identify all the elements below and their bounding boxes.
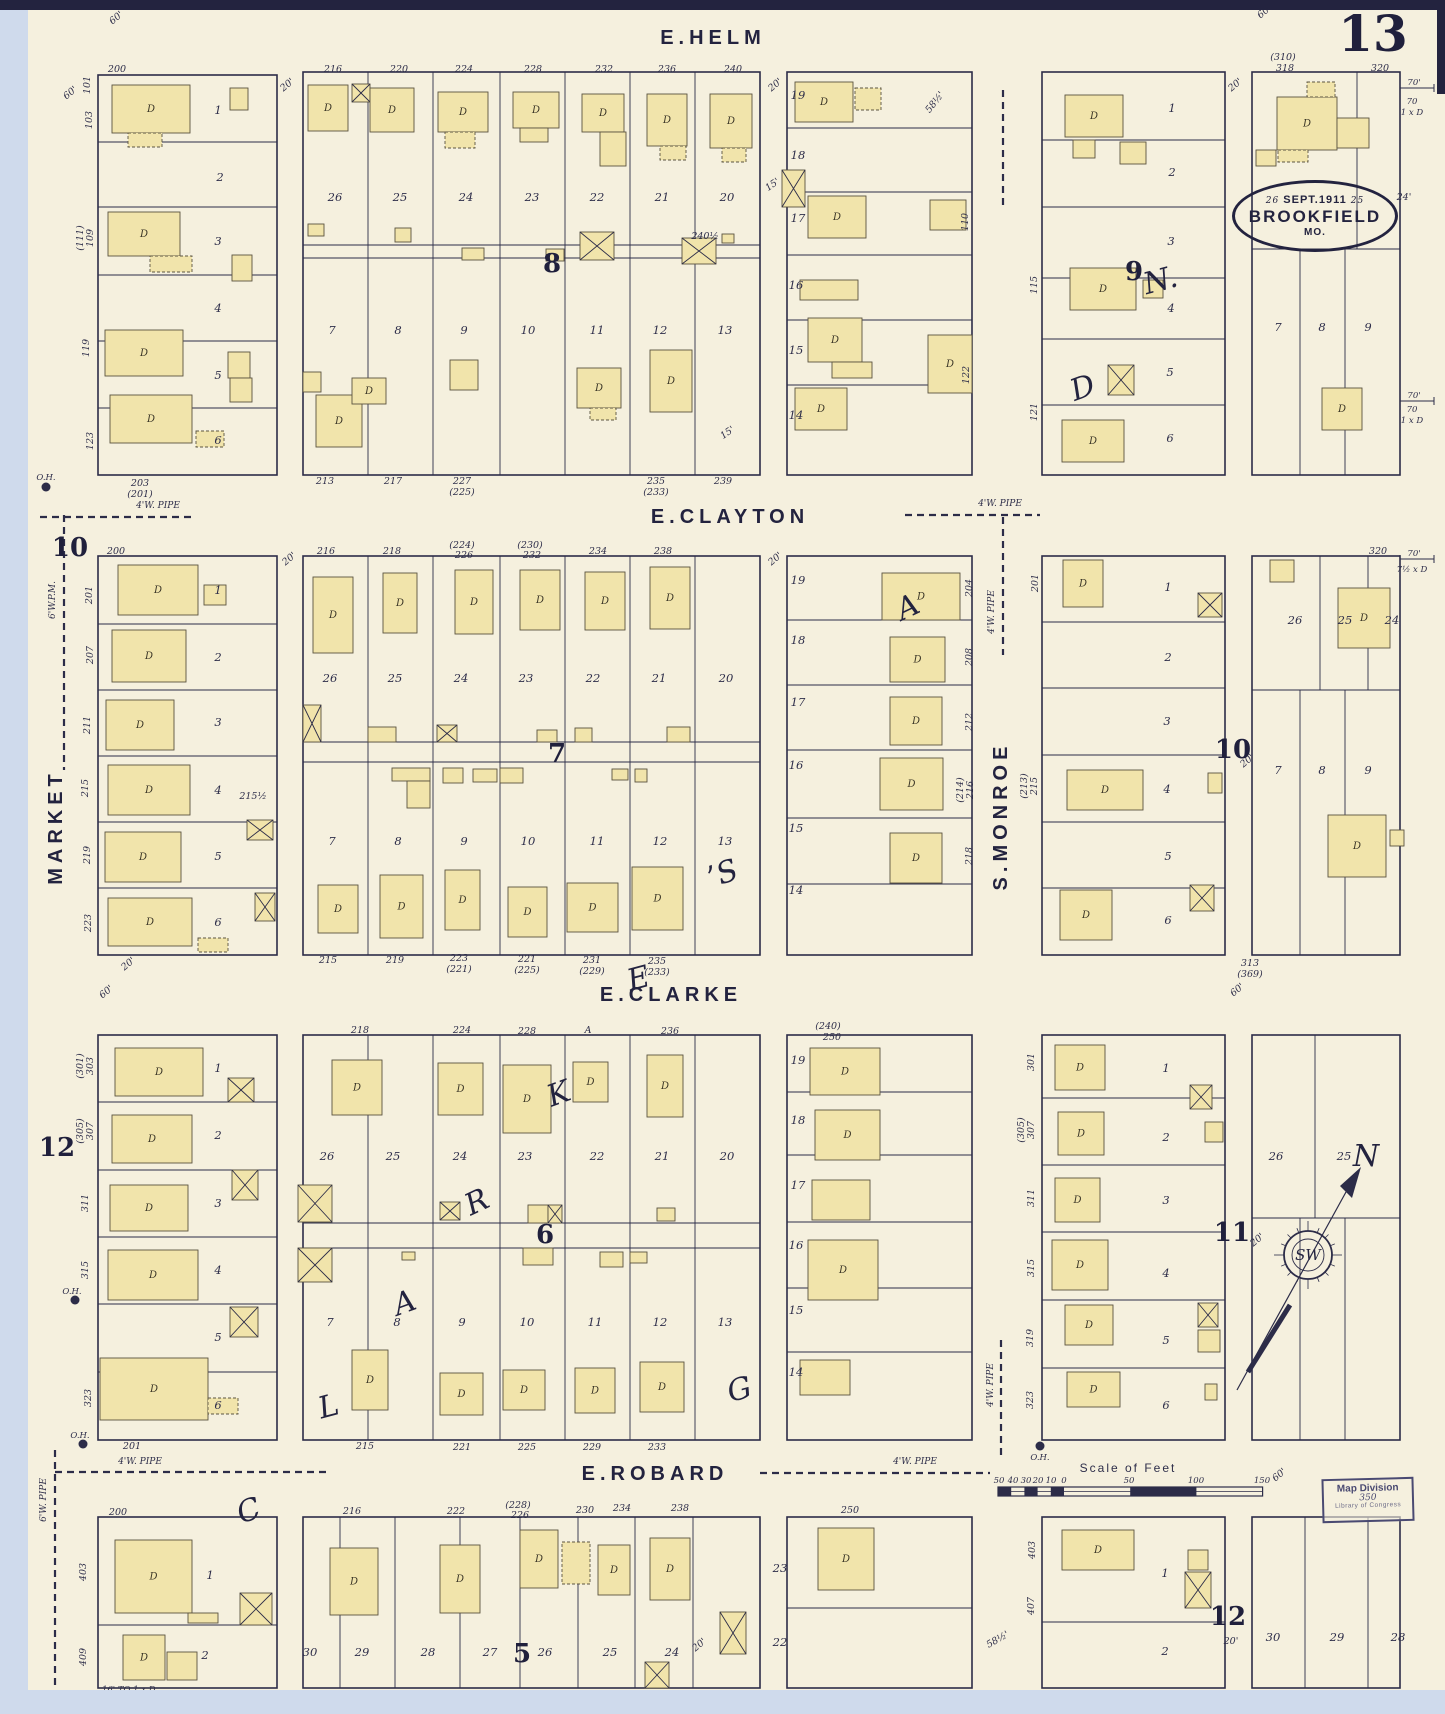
dwelling-label: D (144, 785, 153, 796)
title-stamp-city: BROOKFIELD (1249, 207, 1381, 227)
porch (660, 146, 686, 160)
address-label: 229 (582, 1442, 601, 1453)
lot-number: 3 (1162, 1193, 1169, 1207)
dwelling-label: D (519, 1385, 528, 1396)
lot-number: 25 (392, 190, 408, 204)
lot-number: 9 (1364, 320, 1371, 334)
lot-number: 5 (1166, 365, 1173, 379)
address-label: 219 (82, 846, 93, 865)
dwelling-label: D (323, 103, 332, 114)
building (407, 781, 430, 808)
dwelling-label: D (600, 596, 609, 607)
address-label: 217 (383, 476, 403, 487)
building (812, 1180, 870, 1220)
lot-number: 15 (789, 343, 804, 357)
address-label: 235 (646, 476, 665, 487)
pipe-label: 4'W. PIPE (135, 501, 180, 511)
lot-number: 3 (214, 715, 221, 729)
dwelling-label: D (912, 655, 921, 666)
dwelling-label: D (457, 895, 466, 906)
building (575, 728, 592, 742)
dwelling-label: D (832, 212, 841, 223)
building (1120, 142, 1146, 164)
dwelling-label: D (139, 1653, 148, 1664)
address-label: 226 (454, 550, 473, 561)
address-label: (310) (1270, 52, 1296, 63)
building (800, 1360, 850, 1395)
address-label: 215 (355, 1441, 374, 1452)
address-label: 323 (83, 1389, 94, 1407)
building (520, 128, 548, 142)
lot-number: 4 (213, 301, 221, 315)
title-stamp-date: 26 SEPT.1911 25 (1266, 194, 1364, 206)
building (303, 372, 321, 392)
pipe-label: 6'W. PIPE (39, 1478, 49, 1522)
address-label: 234 (588, 546, 607, 557)
building (1188, 1550, 1208, 1570)
note-label: 70' (1407, 78, 1420, 88)
dwelling-label: D (916, 592, 925, 603)
dwelling-label: D (146, 414, 155, 425)
lot-number: 3 (214, 1196, 221, 1210)
building (1205, 1384, 1217, 1400)
note-label: 70' (1407, 549, 1420, 559)
dwelling-label: D (1078, 579, 1087, 590)
lot-number: 7 (328, 834, 336, 848)
street-name: E.CLAYTON (651, 506, 809, 528)
building (392, 768, 430, 781)
lot-number: 2 (213, 1128, 221, 1142)
address-label: 228 (523, 64, 542, 75)
lot-number: 22 (585, 671, 601, 685)
address-label: 204 (964, 579, 975, 598)
dwelling-label: D (458, 107, 467, 118)
lot-number: 2 (1163, 650, 1171, 664)
lot-number: 27 (482, 1645, 498, 1659)
lot-number: 12 (653, 834, 668, 848)
lot-number: 2 (200, 1648, 208, 1662)
building (500, 768, 523, 783)
lot-number: 2 (213, 650, 221, 664)
porch (208, 1398, 238, 1414)
address-label: 227 (452, 476, 472, 487)
address-label: 213 (315, 476, 334, 487)
lot-number: 23 (524, 190, 540, 204)
dwelling-label: D (1072, 1195, 1081, 1206)
lot-number: 12 (653, 323, 668, 337)
lot-number: 26 (537, 1645, 553, 1659)
dwelling-label: D (395, 598, 404, 609)
lot-number: 24 (664, 1645, 680, 1659)
dwelling-label: D (911, 853, 920, 864)
lot-number: 2 (1161, 1130, 1169, 1144)
dwelling-label: D (1075, 1260, 1084, 1271)
address-label: 201 (84, 586, 95, 605)
building (523, 1248, 553, 1265)
dwelling-label: D (364, 386, 373, 397)
dwelling-label: D (657, 1382, 666, 1393)
building (657, 1208, 675, 1221)
pipe-label: 4'W. PIPE (117, 1457, 162, 1467)
address-label: 216 (316, 546, 335, 557)
lot-number: 1 (214, 1061, 221, 1075)
lot-number: 16 (789, 758, 804, 772)
measurement-label: 20' (1223, 1636, 1239, 1647)
building (667, 727, 690, 742)
lot-number: 30 (303, 1645, 318, 1659)
lot-number: 1 (1164, 580, 1171, 594)
block-number: 8 (543, 249, 561, 279)
dwelling-label: D (146, 104, 155, 115)
note-label: 1 x D (1401, 416, 1424, 426)
address-label: 218 (964, 847, 975, 866)
dwelling-label: D (154, 1067, 163, 1078)
address-label: 211 (82, 716, 93, 735)
pipe-label: 4'W. PIPE (892, 1457, 937, 1467)
address-label: (229) (579, 966, 605, 977)
dwelling-label: D (1098, 284, 1107, 295)
dwelling-label: D (906, 779, 915, 790)
lot-number: 21 (654, 190, 670, 204)
dwelling-label: D (830, 335, 839, 346)
lot-number: 11 (588, 1315, 603, 1329)
address-label: 122 (961, 366, 972, 384)
address-label: (233) (643, 487, 669, 498)
lot-number: 30 (1266, 1630, 1281, 1644)
dwelling-label: D (1337, 404, 1346, 415)
lot-number: 1 (214, 103, 221, 117)
address-label: 216 (323, 64, 342, 75)
address-label: 208 (964, 648, 975, 667)
address-label: 224 (452, 1025, 471, 1036)
dwelling-label: D (334, 416, 343, 427)
library-stamp-line3: Library of Congress (1324, 1501, 1412, 1510)
address-label: 218 (350, 1025, 369, 1036)
lot-number: 24 (1384, 613, 1400, 627)
building (443, 768, 463, 783)
address-label: 315 (80, 1261, 91, 1279)
dwelling-label: D (365, 1375, 374, 1386)
title-stamp-state: MO. (1304, 227, 1326, 238)
dwelling-label: D (662, 115, 671, 126)
note-label: 70 (1407, 97, 1418, 107)
block-number: 5 (513, 1639, 531, 1669)
address-label: 219 (385, 955, 404, 966)
building (1198, 1330, 1220, 1352)
street-name: S.MONROE (990, 742, 1012, 891)
address-label: 215½ (238, 791, 266, 802)
lot-number: 25 (385, 1149, 401, 1163)
lot-number: 5 (1164, 849, 1171, 863)
dwelling-label: D (1359, 613, 1368, 624)
dwelling-label: D (531, 105, 540, 116)
address-label: 403 (78, 1563, 89, 1582)
dwelling-label: D (1084, 1320, 1093, 1331)
building (1390, 830, 1404, 846)
address-label: 240½ (690, 231, 718, 242)
dwelling-label: D (594, 383, 603, 394)
street-name: MARKET (45, 769, 67, 885)
lot-number: 26 (1287, 613, 1303, 627)
address-label: 311 (80, 1194, 91, 1212)
dwelling-label: D (1076, 1129, 1085, 1140)
dwelling-label: D (455, 1084, 464, 1095)
lot-number: 4 (1161, 1266, 1169, 1280)
note-label: O.H. (62, 1287, 81, 1297)
title-stamp-oval: 26 SEPT.1911 25 BROOKFIELD MO. (1232, 180, 1398, 252)
page-edge-top (0, 0, 1445, 10)
address-label: 212 (964, 713, 975, 732)
dwelling-label: D (1100, 785, 1109, 796)
address-label: 307 (1026, 1120, 1037, 1139)
building (167, 1652, 197, 1680)
porch (150, 256, 192, 272)
lot-number: 7 (1274, 763, 1282, 777)
address-label: 307 (85, 1121, 96, 1140)
lot-number: 18 (791, 1113, 806, 1127)
measurement-label: 24' (1396, 192, 1412, 203)
block-number: 10 (52, 533, 88, 563)
address-label: 315 (1026, 1259, 1037, 1277)
pipe-label: 4'W. PIPE (987, 590, 997, 635)
lot-number: 1 (1168, 101, 1175, 115)
dwelling-label: D (841, 1554, 850, 1565)
address-label: 200 (106, 546, 125, 557)
dwelling-label: D (842, 1130, 851, 1141)
lot-number: 25 (1337, 613, 1353, 627)
address-label: 233 (647, 1442, 666, 1453)
address-label: 215 (318, 955, 337, 966)
porch (128, 133, 162, 147)
address-label: 224 (454, 64, 473, 75)
address-label: (240) (815, 1021, 841, 1032)
lot-number: 17 (791, 211, 806, 225)
lot-number: 26 (1268, 1149, 1284, 1163)
dwelling-label: D (469, 597, 478, 608)
block-number: 6 (536, 1220, 554, 1250)
note-label: 20 (1032, 1476, 1044, 1486)
building (1205, 1122, 1223, 1142)
lot-number: 4 (213, 783, 221, 797)
lot-number: 19 (791, 88, 806, 102)
lot-number: 6 (214, 1398, 221, 1412)
lot-number: 13 (718, 834, 733, 848)
address-label: 319 (1025, 1329, 1036, 1347)
building (1270, 560, 1294, 582)
lot-number: 3 (1167, 234, 1174, 248)
address-label: 201 (122, 1441, 141, 1452)
dwelling-label: D (652, 894, 661, 905)
lot-number: 18 (791, 633, 806, 647)
dwelling-label: D (333, 904, 342, 915)
dwelling-label: D (535, 595, 544, 606)
address-label: 407 (1026, 1596, 1037, 1616)
dwelling-label: D (1081, 910, 1090, 921)
lot-number: 11 (590, 834, 605, 848)
lot-number: 29 (354, 1645, 370, 1659)
building (308, 224, 324, 236)
address-label: 240 (723, 64, 742, 75)
hydrant-icon (1036, 1442, 1045, 1451)
lot-number: 5 (214, 368, 221, 382)
address-label: 236 (657, 64, 676, 75)
lot-number: 7 (1274, 320, 1282, 334)
note-label: 0 (1061, 1476, 1067, 1486)
porch (1278, 150, 1308, 162)
porch (1307, 82, 1335, 97)
building (230, 378, 252, 402)
dwelling-label: D (819, 97, 828, 108)
porch (590, 408, 616, 420)
sheet-number: 13 (1338, 8, 1408, 60)
building (368, 727, 396, 742)
sanborn-map-canvas: DDDDDDDDDDDDDDDDDDDDDDDDDDDDDDDDDDDDDDDD… (0, 0, 1445, 1714)
lot-number: 6 (214, 433, 221, 447)
lot-number: 14 (789, 1365, 804, 1379)
note-label: 100 (1188, 1476, 1205, 1486)
lot-number: 24 (453, 671, 469, 685)
address-label: 223 (449, 953, 468, 964)
lot-number: 20 (719, 1149, 735, 1163)
address-label: 109 (85, 229, 96, 247)
lot-number: 6 (1166, 431, 1173, 445)
address-label: (369) (1237, 969, 1263, 980)
page-edge-left (0, 10, 28, 1714)
pipe-label: 6'W.P.M. (48, 581, 58, 619)
note-label: O.H. (36, 473, 55, 483)
page-edge-right-top (1437, 10, 1445, 94)
dwelling-label: D (1093, 1545, 1102, 1556)
lot-number: 25 (387, 671, 403, 685)
dwelling-label: D (590, 1386, 599, 1397)
address-label: (225) (514, 965, 540, 976)
lot-number: 8 (1318, 320, 1325, 334)
address-label: 200 (108, 1507, 127, 1518)
address-label: 226 (510, 1510, 529, 1521)
lot-number: 22 (589, 1149, 605, 1163)
address-label: 320 (1369, 546, 1387, 557)
lot-number: 24 (458, 190, 474, 204)
lot-number: 14 (789, 408, 804, 422)
address-label: 221 (517, 954, 536, 965)
lot-number: 18 (791, 148, 806, 162)
lot-number: 8 (394, 834, 401, 848)
dwelling-label: D (609, 1565, 618, 1576)
dwelling-label: D (838, 1265, 847, 1276)
address-label: 200 (107, 64, 126, 75)
dwelling-label: D (1302, 119, 1311, 130)
lot-number: 17 (791, 695, 806, 709)
dwelling-label: D (352, 1083, 361, 1094)
lot-number: 24 (452, 1149, 468, 1163)
lot-number: 9 (460, 323, 467, 337)
address-label: (201) (127, 489, 153, 500)
lot-number: 26 (322, 671, 338, 685)
lot-number: 20 (718, 671, 734, 685)
lot-number: 1 (214, 583, 221, 597)
building (473, 769, 497, 782)
address-label: 234 (612, 1503, 631, 1514)
block-number: 12 (1210, 1602, 1246, 1632)
address-label: 323 (1025, 1391, 1036, 1409)
lot-number: 28 (1390, 1630, 1406, 1644)
dwelling-label: D (328, 610, 337, 621)
block-number: 7 (548, 739, 566, 769)
building (630, 1252, 647, 1263)
lot-number: 28 (420, 1645, 436, 1659)
lot-number: 17 (791, 1178, 806, 1192)
address-label: 119 (81, 339, 92, 357)
lot-number: 22 (589, 190, 605, 204)
lot-number: 4 (1166, 301, 1174, 315)
lot-number: 6 (214, 915, 221, 929)
lot-number: 7 (328, 323, 336, 337)
street-name: E.CLARKE (600, 984, 742, 1006)
dwelling-label: D (387, 105, 396, 116)
lot-number: 6 (1162, 1398, 1169, 1412)
lot-number: 13 (718, 1315, 733, 1329)
address-label: 403 (1027, 1541, 1038, 1560)
dwelling-label: D (1352, 841, 1361, 852)
lot-number: 7 (326, 1315, 334, 1329)
dwelling-label: D (665, 1564, 674, 1575)
sanborn-map-page: DDDDDDDDDDDDDDDDDDDDDDDDDDDDDDDDDDDDDDDD… (0, 0, 1445, 1714)
lot-number: 16 (789, 1238, 804, 1252)
building (232, 255, 252, 281)
address-label: 203 (130, 478, 149, 489)
building (612, 769, 628, 780)
lot-number: 2 (1167, 165, 1175, 179)
porch (562, 1542, 590, 1584)
lot-number: 9 (458, 1315, 465, 1329)
note-label: 50 (1124, 1476, 1135, 1486)
address-label: 250 (840, 1505, 859, 1516)
building (228, 352, 250, 378)
address-label: 103 (84, 111, 95, 129)
dwelling-label: D (455, 1574, 464, 1585)
lot-number: 3 (1163, 714, 1170, 728)
building (1208, 773, 1222, 793)
dwelling-label: D (147, 1134, 156, 1145)
lot-number: 26 (319, 1149, 335, 1163)
lot-number: 15 (789, 821, 804, 835)
dwelling-label: D (456, 1389, 465, 1400)
lot-number: 1 (206, 1568, 213, 1582)
lot-number: 2 (1160, 1644, 1168, 1658)
lot-number: 5 (1162, 1333, 1169, 1347)
building (1256, 150, 1276, 166)
lot-number: 5 (214, 849, 221, 863)
lot-number: 8 (394, 323, 401, 337)
address-label: 250 (822, 1032, 841, 1043)
address-label: 201 (1030, 574, 1041, 593)
note-label: 40 (1007, 1476, 1019, 1486)
building (800, 280, 858, 300)
dwelling-label: D (665, 593, 674, 604)
page-edge-bottom (28, 1690, 1445, 1714)
address-label: 228 (517, 1026, 536, 1037)
compass-north-label: N (1352, 1139, 1381, 1174)
dwelling-label: D (145, 917, 154, 928)
address-label: (225) (449, 487, 475, 498)
lot-number: 4 (1162, 782, 1170, 796)
address-label: 313 (1241, 958, 1259, 969)
lot-number: 22 (772, 1635, 788, 1649)
lot-number: 25 (602, 1645, 618, 1659)
dwelling-label: D (144, 651, 153, 662)
dwelling-label: D (153, 585, 162, 596)
lot-number: 10 (521, 834, 536, 848)
